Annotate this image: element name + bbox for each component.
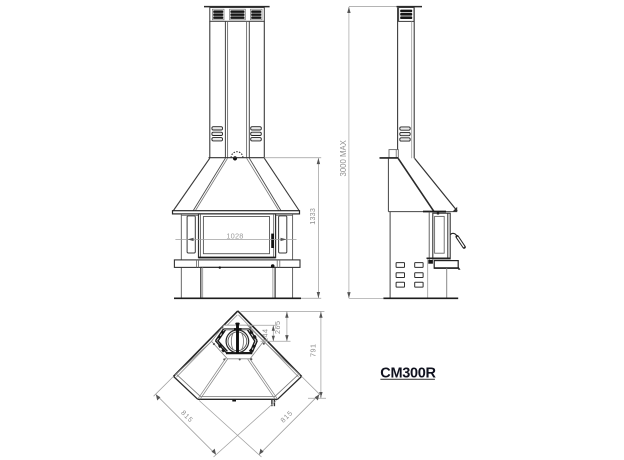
svg-text:1333: 1333	[308, 208, 317, 225]
svg-text:265: 265	[273, 321, 282, 335]
svg-text:144: 144	[260, 329, 269, 343]
svg-text:1028: 1028	[226, 232, 243, 241]
svg-text:3000 MAX: 3000 MAX	[339, 139, 348, 176]
svg-text:791: 791	[309, 344, 318, 358]
